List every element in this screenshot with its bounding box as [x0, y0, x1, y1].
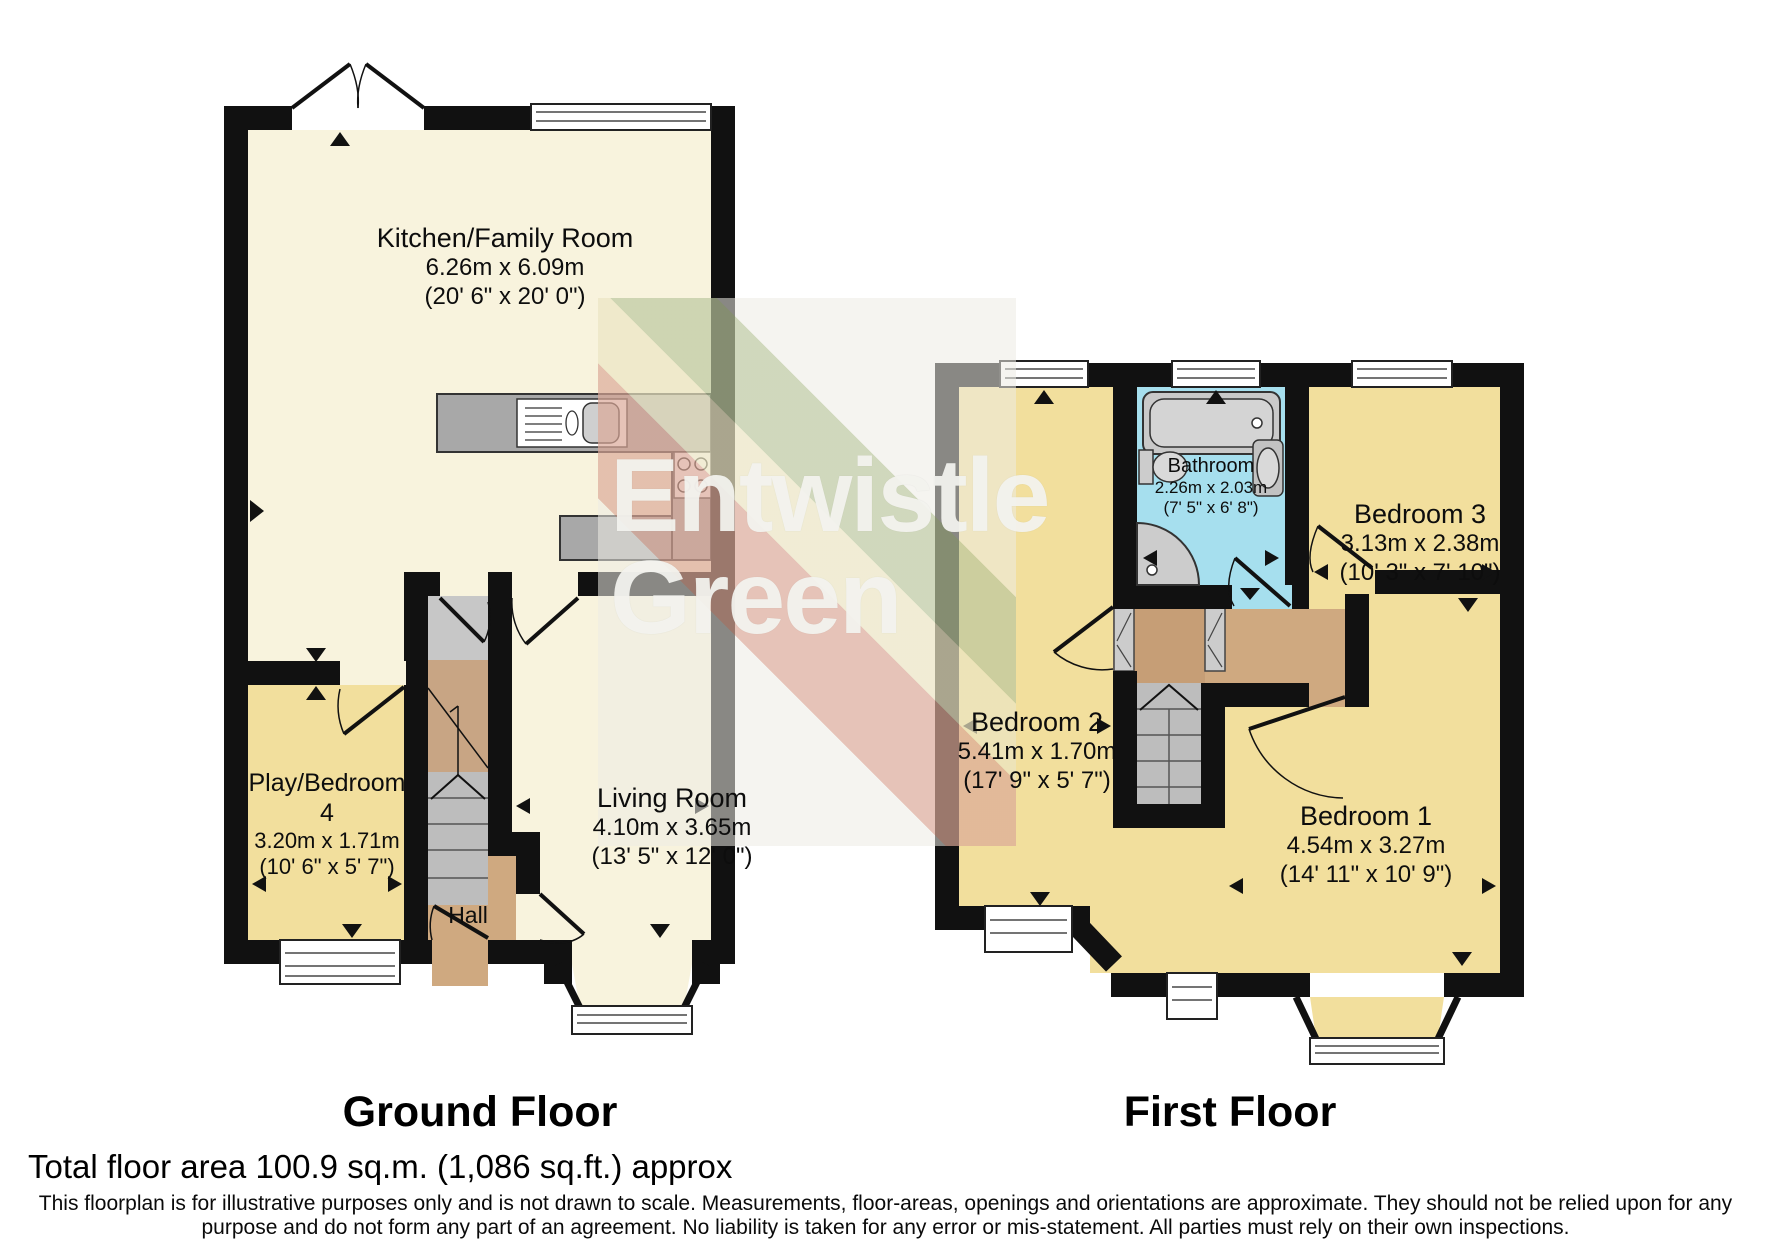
entrance-opening: [292, 106, 424, 130]
first-floor-title: First Floor: [1124, 1088, 1337, 1137]
living-room-bay-window: [544, 964, 720, 1034]
play-bedroom-window: [280, 940, 400, 984]
bedroom2-label: Bedroom 2 5.41m x 1.70m (17' 9" x 5' 7"): [958, 706, 1117, 796]
disclaimer-line2: purpose and do not form any part of an a…: [0, 1216, 1771, 1240]
ground-floor-plan: [224, 64, 735, 1034]
bedroom1-label: Bedroom 1 4.54m x 3.27m (14' 11" x 10' 9…: [1280, 800, 1453, 890]
living-room-label: Living Room 4.10m x 3.65m (13' 5" x 12' …: [592, 782, 753, 872]
bathroom-window: [1172, 361, 1260, 387]
staircase-ground: [428, 772, 488, 905]
bedroom2-bottom-window: [985, 906, 1072, 952]
bedroom3-window: [1352, 361, 1452, 387]
play-bedroom-label: Play/Bedroom 4 3.20m x 1.71m (10' 6" x 5…: [248, 768, 405, 881]
stair-vestibule: [428, 596, 488, 660]
disclaimer-line1: This floorplan is for illustrative purpo…: [0, 1192, 1771, 1216]
bedroom1-small-window: [1167, 973, 1217, 1019]
kitchen-window: [531, 104, 711, 130]
bathroom-label: Bathroom 2.26m x 2.03m (7' 5" x 6' 8"): [1155, 454, 1267, 519]
hall-label: Hall: [448, 902, 488, 929]
kitchen-label: Kitchen/Family Room 6.26m x 6.09m (20' 6…: [377, 222, 634, 312]
bedroom1-bay-window: [1284, 973, 1470, 1064]
bedroom3-label: Bedroom 3 3.13m x 2.38m (10' 3" x 7' 10"…: [1340, 498, 1501, 588]
ground-floor-title: Ground Floor: [343, 1088, 618, 1137]
total-floor-area: Total floor area 100.9 sq.m. (1,086 sq.f…: [28, 1148, 732, 1186]
floorplan-page: Entwistle Green Kitchen/Family Room 6.26…: [0, 0, 1771, 1240]
patio-double-door: [292, 64, 424, 108]
floorplan-drawing: [0, 0, 1771, 1240]
bedroom2-top-window: [1000, 361, 1088, 387]
kitchen-hob: [674, 452, 711, 498]
